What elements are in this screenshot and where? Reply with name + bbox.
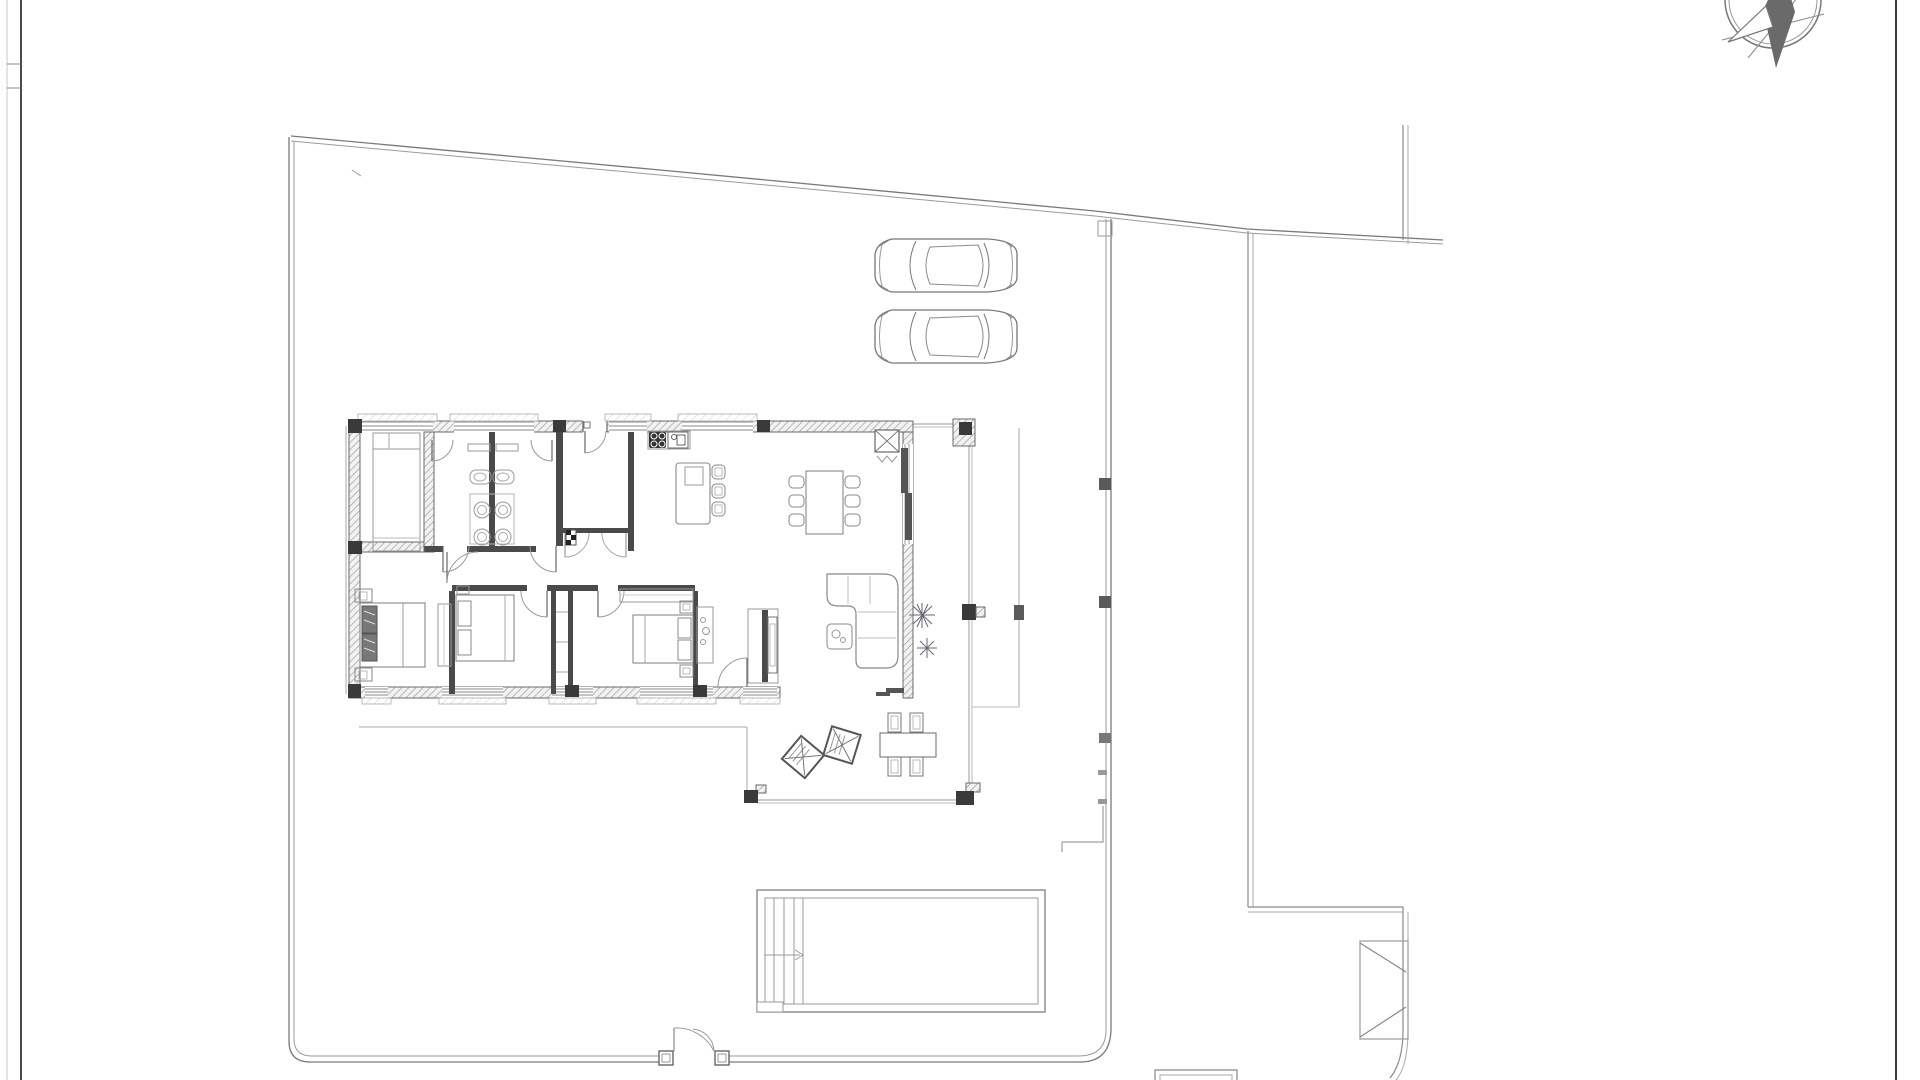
column (565, 685, 579, 697)
column (348, 684, 361, 698)
window-sill (740, 698, 780, 704)
tv-screen (768, 617, 777, 673)
column (348, 419, 362, 433)
window-sill (605, 414, 651, 421)
terrace-column (962, 604, 976, 620)
closet-wall (568, 591, 573, 694)
terrace-column (744, 790, 758, 803)
kitchen-wall (628, 432, 634, 551)
window-sill (362, 698, 391, 704)
fence-post (1099, 733, 1111, 743)
sliding-door-leaf (905, 493, 912, 540)
window-sill (439, 698, 506, 704)
terrace-column (956, 791, 974, 805)
plant (917, 638, 937, 658)
window-sill (678, 414, 757, 421)
bath-south-wall (424, 546, 443, 552)
bedroom-north-wall (618, 585, 695, 591)
bedroom-divider (449, 591, 455, 694)
window-sill (450, 414, 538, 421)
sliding-door-leaf (901, 448, 908, 493)
pillow (362, 634, 377, 661)
terrace-column (959, 422, 972, 435)
window-sill (549, 698, 596, 704)
fence-post (1099, 478, 1111, 490)
column (693, 685, 707, 697)
pool-corner-step (757, 1002, 783, 1012)
window-sill (358, 414, 437, 421)
dining-table (806, 471, 843, 534)
column (757, 420, 770, 432)
fence-post (1099, 596, 1111, 608)
west-wall (349, 432, 360, 698)
terrace-column-pad (976, 607, 985, 617)
gate-post-left (659, 1051, 673, 1065)
bath-entry-wall (556, 432, 563, 546)
sheet-background (0, 0, 1920, 1080)
terrace-column-pad (966, 783, 980, 792)
bath-south-wall (467, 546, 536, 552)
closet-wall (551, 591, 556, 694)
outdoor-table (880, 733, 936, 757)
pillow (362, 606, 377, 633)
page: { "canvas": {"width": 1920, "height": 10… (0, 0, 1920, 1080)
bedroom-north-wall (547, 585, 598, 591)
fence-hinge (1098, 799, 1107, 804)
tv-partition-core (762, 610, 768, 682)
sliding-door-leaf-south (876, 692, 890, 696)
entry-hall-6 (566, 540, 571, 545)
floor-plan-svg (0, 0, 1920, 1080)
pergola-post (1014, 605, 1024, 620)
bed-3 (633, 615, 693, 663)
column (553, 420, 566, 432)
gate-post-right (715, 1051, 729, 1065)
entry-hall-5 (571, 535, 576, 540)
entry-hall-4 (566, 530, 571, 535)
fence-hinge (1098, 770, 1107, 775)
column (348, 541, 362, 554)
site-plan-canvas (0, 0, 1920, 1080)
window-sill (637, 698, 716, 704)
